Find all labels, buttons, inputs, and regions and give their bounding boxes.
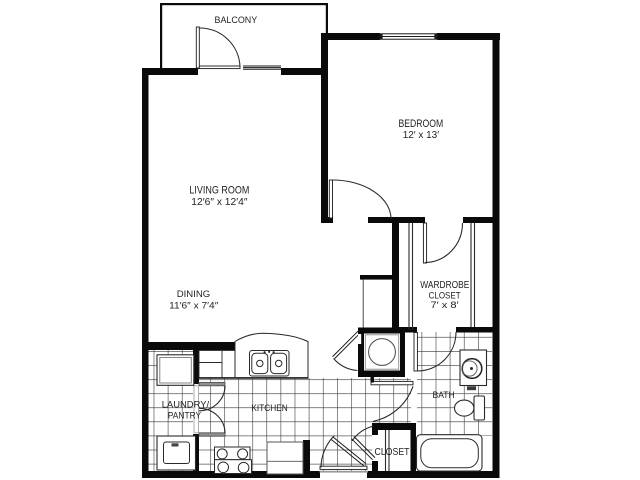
svg-text:7′ x 8′: 7′ x 8′ bbox=[431, 300, 459, 311]
svg-text:11′6″ x 7′4″: 11′6″ x 7′4″ bbox=[169, 300, 219, 311]
svg-text:BALCONY: BALCONY bbox=[215, 15, 258, 26]
svg-text:CLOSET: CLOSET bbox=[375, 447, 410, 458]
svg-text:PANTRY: PANTRY bbox=[168, 410, 202, 421]
svg-text:12′ x 13′: 12′ x 13′ bbox=[403, 130, 440, 141]
svg-text:12′6″ x 12′4″: 12′6″ x 12′4″ bbox=[191, 197, 248, 208]
svg-text:DINING: DINING bbox=[177, 289, 211, 300]
svg-text:KITCHEN: KITCHEN bbox=[251, 403, 287, 414]
svg-text:LIVING ROOM: LIVING ROOM bbox=[189, 185, 249, 197]
svg-text:LAUNDRY/: LAUNDRY/ bbox=[162, 400, 210, 411]
svg-text:BATH: BATH bbox=[433, 390, 455, 401]
svg-text:BEDROOM: BEDROOM bbox=[399, 118, 444, 130]
